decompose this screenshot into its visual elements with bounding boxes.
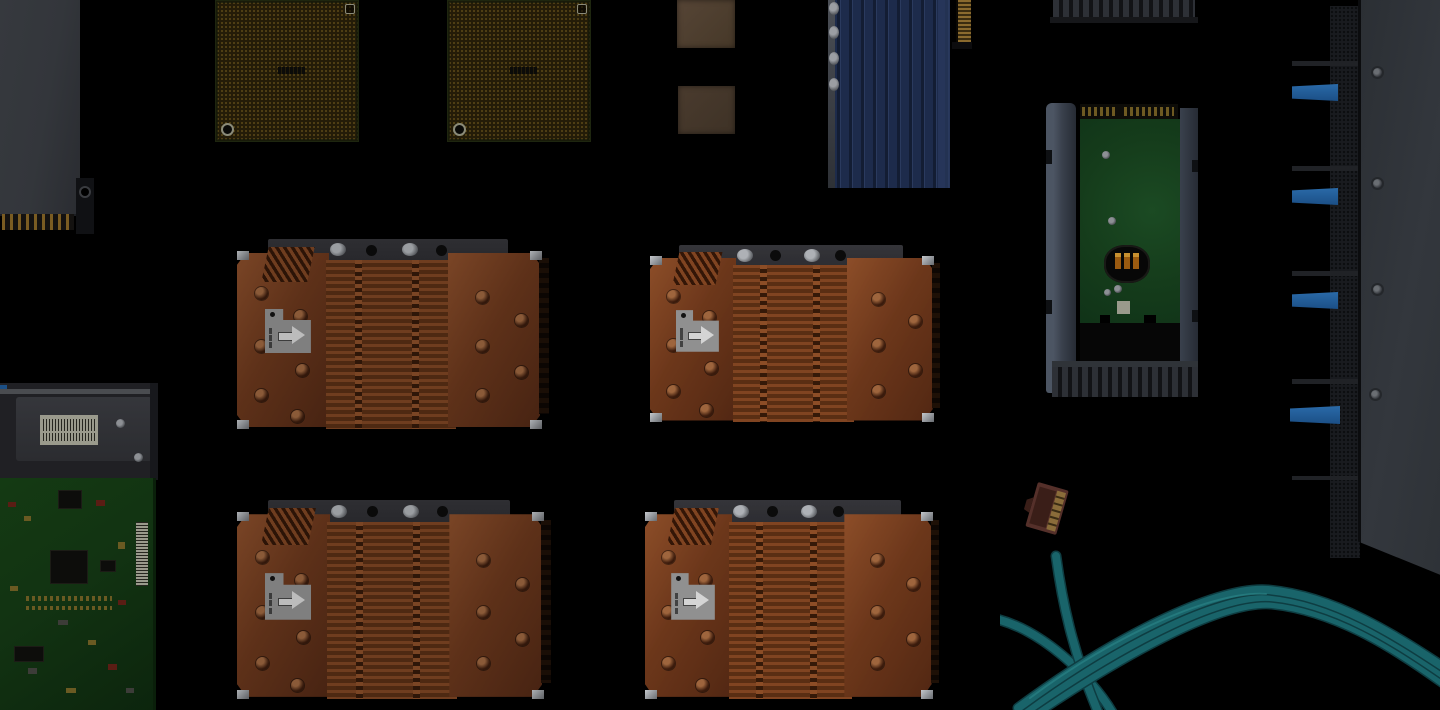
pcb-slot xyxy=(1100,315,1110,323)
component xyxy=(28,668,37,674)
component xyxy=(118,600,126,605)
fin-fold xyxy=(412,260,419,429)
corner-cap xyxy=(921,690,933,699)
label-dot xyxy=(681,313,686,318)
memory-module xyxy=(0,0,80,216)
corner-cap xyxy=(237,512,249,521)
label-mark xyxy=(269,335,272,341)
alignment-mark-icon xyxy=(577,4,587,14)
label-mark xyxy=(680,341,683,347)
screw-icon xyxy=(871,657,884,670)
chip xyxy=(14,646,44,662)
label-mark xyxy=(269,593,272,599)
screw-icon xyxy=(667,385,680,398)
corner-cap xyxy=(922,256,934,265)
screw-icon xyxy=(296,364,309,377)
screw-icon xyxy=(907,633,920,646)
heatsink-right-plate xyxy=(448,253,540,428)
screw-icon xyxy=(476,340,489,353)
blue-latch-tab xyxy=(1292,84,1338,101)
cpu-chip-left xyxy=(215,0,359,142)
screw-icon xyxy=(516,578,529,591)
bracket-hole xyxy=(833,506,844,517)
sata-connector xyxy=(1080,104,1178,119)
bracket-hole xyxy=(436,245,447,256)
bracket-hole xyxy=(767,506,778,517)
screw-icon xyxy=(297,631,310,644)
latch-base-bar xyxy=(1050,17,1198,23)
angled-fin-block xyxy=(672,252,722,285)
heatsink-fins xyxy=(733,265,854,422)
label-mark xyxy=(269,342,272,348)
capacitor-row xyxy=(278,67,305,74)
heatsink-right-plate xyxy=(844,514,931,697)
screw-icon xyxy=(476,389,489,402)
angled-fin-block xyxy=(261,247,315,282)
metal-enclosure xyxy=(0,383,158,480)
capacitor-icon xyxy=(829,52,839,65)
heatsink-fins xyxy=(326,260,455,429)
bracket-hole xyxy=(437,506,448,517)
rail-notch xyxy=(1192,160,1198,172)
screw-icon xyxy=(871,554,884,567)
screw-icon xyxy=(515,314,528,327)
corner-cap xyxy=(237,690,249,699)
fin-fold xyxy=(760,265,767,422)
corner-cap xyxy=(645,690,657,699)
label-mark xyxy=(675,608,678,614)
screw-icon xyxy=(476,291,489,304)
blue-latch-tab xyxy=(1290,406,1340,424)
bay-rail xyxy=(1292,61,1362,66)
heatsink-right-plate xyxy=(449,514,542,697)
corner-cap xyxy=(650,256,662,265)
thermal-pad-top xyxy=(677,0,735,48)
solder-pad-row xyxy=(26,606,112,610)
screw-icon xyxy=(134,453,143,462)
component xyxy=(10,586,18,591)
screw-icon xyxy=(907,578,920,591)
component xyxy=(126,688,134,693)
screw-icon xyxy=(515,366,528,379)
screw-icon xyxy=(700,404,713,417)
label-dot xyxy=(270,576,275,581)
corner-cap xyxy=(645,512,657,521)
screw-icon xyxy=(667,290,680,303)
copper-heatsink-3 xyxy=(237,500,547,703)
alignment-ring-icon xyxy=(221,123,234,136)
chip xyxy=(50,550,88,584)
standoff-icon xyxy=(403,505,419,518)
corner-cap xyxy=(922,413,934,422)
capacitor-row xyxy=(510,67,537,74)
arrow-shaft xyxy=(279,599,293,606)
screw-icon xyxy=(696,679,709,692)
arrow-shaft xyxy=(279,333,293,339)
screw-icon xyxy=(872,293,885,306)
rail-notch xyxy=(1046,300,1052,314)
screw-icon xyxy=(909,364,922,377)
corner-cap xyxy=(530,420,542,429)
component xyxy=(118,542,125,549)
side-fin-stack xyxy=(931,520,940,682)
screw-icon xyxy=(872,339,885,352)
screw-icon xyxy=(1373,68,1382,77)
caddy-latch-teeth xyxy=(1052,367,1198,397)
fin-fold xyxy=(356,522,363,699)
alignment-ring-icon xyxy=(453,123,466,136)
standoff-icon xyxy=(331,505,347,518)
rj45-plug xyxy=(1020,480,1069,535)
label-mark xyxy=(680,334,683,340)
arrow-head-icon xyxy=(696,591,709,609)
screw-icon xyxy=(477,657,490,670)
standoff-icon xyxy=(737,249,753,262)
corner-cap xyxy=(650,413,662,422)
component xyxy=(88,640,96,645)
barcode xyxy=(43,433,94,441)
copper-heatsink-4 xyxy=(645,500,936,703)
screw-icon xyxy=(516,633,529,646)
component xyxy=(58,620,68,625)
corner-cap xyxy=(532,512,544,521)
arrow-head-icon xyxy=(292,591,305,609)
screw-icon xyxy=(662,551,675,564)
enclosure-edge xyxy=(150,383,158,480)
screw-icon xyxy=(1104,289,1111,296)
caddy-rail-left xyxy=(1046,103,1076,393)
capacitor-icon xyxy=(829,2,839,15)
standoff-icon xyxy=(804,249,820,262)
screw-icon xyxy=(477,606,490,619)
ethernet-cable xyxy=(1000,470,1440,710)
component xyxy=(66,688,76,693)
fin-fold xyxy=(756,522,763,699)
cpu-chip-right xyxy=(447,0,591,142)
standoff-icon xyxy=(801,505,817,518)
corner-cap xyxy=(921,512,933,521)
alignment-mark-icon xyxy=(345,4,355,14)
screw-icon xyxy=(872,385,885,398)
screw-icon xyxy=(477,554,490,567)
component xyxy=(96,500,105,506)
corner-cap xyxy=(237,420,249,429)
bay-rail xyxy=(1292,271,1362,276)
bay-rail xyxy=(1292,379,1362,384)
screw-icon xyxy=(705,362,718,375)
chip xyxy=(58,490,82,509)
screw-icon xyxy=(116,419,125,428)
fin-highlight xyxy=(938,0,950,188)
solder-pad-row xyxy=(26,596,112,601)
hardware-flatlay-scene xyxy=(0,0,1440,710)
component xyxy=(24,516,31,521)
latch-teeth-strip xyxy=(1053,0,1195,17)
label-dot xyxy=(676,576,681,581)
label-mark xyxy=(675,600,678,606)
screw-icon xyxy=(255,287,268,300)
bracket-hole xyxy=(367,506,378,517)
barcode xyxy=(43,419,94,430)
rail-notch xyxy=(1192,310,1198,322)
screw-icon xyxy=(255,389,268,402)
card-edge-base xyxy=(952,42,972,49)
screw-icon xyxy=(1373,285,1382,294)
screw-icon xyxy=(256,551,269,564)
label-mark xyxy=(269,600,272,606)
fin-fold xyxy=(355,260,362,429)
heatsink-fins xyxy=(729,522,851,699)
screw-icon xyxy=(871,606,884,619)
capacitor-icon xyxy=(829,26,839,39)
dimm-side-clip xyxy=(76,178,94,234)
screw-icon xyxy=(1108,217,1116,225)
label-mark xyxy=(269,328,272,334)
side-fin-stack xyxy=(541,520,550,682)
angled-fin-block xyxy=(667,508,718,545)
heatsink-fins xyxy=(327,522,457,699)
label-mark xyxy=(680,328,683,334)
pcb-label xyxy=(1117,301,1130,314)
copper-heatsink-2 xyxy=(650,245,937,426)
gold-card-edge xyxy=(956,0,971,42)
component xyxy=(108,664,117,670)
blue-latch-tab xyxy=(1292,188,1338,205)
screw-icon xyxy=(291,410,304,423)
screw-icon xyxy=(1373,179,1382,188)
bracket-hole xyxy=(366,245,377,256)
motor-coil xyxy=(1124,253,1130,269)
screw-icon xyxy=(662,657,675,670)
pcb-slot xyxy=(1144,315,1156,323)
screw-icon xyxy=(1114,285,1122,293)
corner-cap xyxy=(532,690,544,699)
fin-fold xyxy=(813,265,820,422)
label-mark xyxy=(675,593,678,599)
sata-fingers xyxy=(1082,107,1116,116)
component xyxy=(8,502,16,507)
standoff-icon xyxy=(330,243,346,256)
screw-icon xyxy=(1371,390,1380,399)
bracket-hole xyxy=(835,250,846,261)
sata-fingers xyxy=(1124,107,1174,116)
bracket-hole xyxy=(770,250,781,261)
fin-fold xyxy=(810,522,817,699)
blue-finned-heatsink xyxy=(828,0,950,188)
screw-icon xyxy=(256,657,269,670)
dimm-gold-pins xyxy=(2,214,74,230)
rail-notch xyxy=(1046,150,1052,164)
copper-heatsink-1 xyxy=(237,239,545,433)
heatsink-right-plate xyxy=(847,258,933,421)
arrow-head-icon xyxy=(701,326,714,344)
thermal-pad-bottom xyxy=(678,86,735,134)
capacitor-icon xyxy=(829,78,839,91)
standoff-icon xyxy=(402,243,418,256)
caddy-rail-right xyxy=(1180,108,1198,390)
arrow-shaft xyxy=(684,599,697,606)
label-dot xyxy=(270,312,275,317)
screw-icon xyxy=(909,315,922,328)
barcode-label xyxy=(40,415,98,445)
blue-latch-tab xyxy=(1292,292,1338,309)
standoff-icon xyxy=(733,505,749,518)
enclosure-rail xyxy=(0,389,152,394)
angled-fin-block xyxy=(261,508,315,545)
controller-board xyxy=(0,478,156,710)
screw-icon xyxy=(1102,151,1110,159)
corner-cap xyxy=(237,251,249,260)
fin-fold xyxy=(413,522,420,699)
corner-cap xyxy=(530,251,542,260)
label-mark xyxy=(269,608,272,614)
screw-icon xyxy=(291,679,304,692)
arrow-head-icon xyxy=(292,326,305,344)
arrow-shaft xyxy=(689,333,702,339)
spindle-motor xyxy=(1104,245,1150,283)
motor-coil xyxy=(1115,253,1121,269)
side-fin-stack xyxy=(539,258,548,413)
side-fin-stack xyxy=(932,263,941,408)
barcode-label-vertical xyxy=(136,522,148,586)
drive-pcb xyxy=(1080,119,1180,323)
screw-icon xyxy=(701,631,714,644)
chip xyxy=(100,560,116,572)
bay-rail xyxy=(1292,166,1362,171)
motor-coil xyxy=(1133,253,1139,269)
